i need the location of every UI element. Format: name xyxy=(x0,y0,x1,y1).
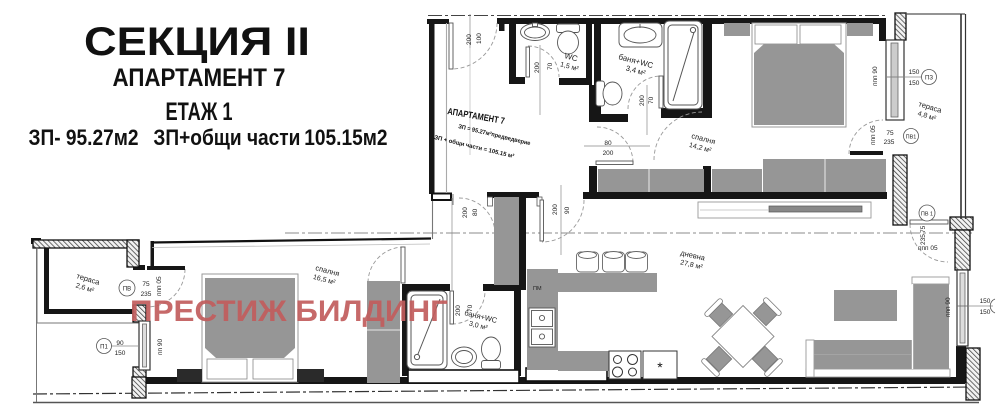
svg-text:*: * xyxy=(657,359,663,375)
svg-text:70: 70 xyxy=(467,304,474,312)
svg-text:150: 150 xyxy=(980,309,991,316)
svg-text:75: 75 xyxy=(886,130,894,137)
svg-text:100: 100 xyxy=(476,33,483,44)
svg-text:П1: П1 xyxy=(100,345,108,351)
svg-text:70: 70 xyxy=(547,62,554,70)
svg-text:ЗП- 95.27м2 ЗП+общи части 105: ЗП- 95.27м2 ЗП+общи части 105.15м2 xyxy=(29,125,388,150)
svg-text:ЕТАЖ 1: ЕТАЖ 1 xyxy=(166,98,233,126)
svg-text:235: 235 xyxy=(920,234,927,245)
svg-text:ПЗ: ПЗ xyxy=(925,76,933,82)
svg-text:90: 90 xyxy=(116,340,124,347)
svg-text:ппп 05: ппп 05 xyxy=(870,125,877,145)
svg-text:75: 75 xyxy=(142,281,150,288)
svg-text:200: 200 xyxy=(639,95,646,106)
svg-text:150: 150 xyxy=(909,80,920,87)
svg-text:75: 75 xyxy=(920,225,927,233)
svg-text:ПВ 1: ПВ 1 xyxy=(921,212,933,218)
svg-text:150: 150 xyxy=(909,69,920,76)
svg-text:150: 150 xyxy=(115,350,126,357)
svg-text:пп 90: пп 90 xyxy=(157,339,164,355)
svg-text:200: 200 xyxy=(466,34,473,45)
svg-text:235: 235 xyxy=(884,139,895,146)
svg-text:ппп 90: ппп 90 xyxy=(872,66,879,86)
svg-text:200: 200 xyxy=(603,150,614,157)
svg-text:70: 70 xyxy=(648,96,655,104)
svg-text:ПМ: ПМ xyxy=(533,286,542,292)
svg-text:200: 200 xyxy=(534,62,541,73)
svg-text:150: 150 xyxy=(980,298,991,305)
svg-text:200: 200 xyxy=(462,207,469,218)
svg-text:АПАРТАМЕНТ 7: АПАРТАМЕНТ 7 xyxy=(113,64,286,92)
svg-text:ппп 90: ппп 90 xyxy=(945,297,952,317)
svg-text:ппп 05: ппп 05 xyxy=(918,245,938,252)
svg-text:ПВ: ПВ xyxy=(123,287,131,293)
svg-text:200: 200 xyxy=(455,305,462,316)
svg-text:ПРЕСТИЖ БИЛДИНГ: ПРЕСТИЖ БИЛДИНГ xyxy=(130,295,448,328)
svg-text:90: 90 xyxy=(564,206,571,214)
svg-text:80: 80 xyxy=(604,140,612,147)
svg-text:ппп 05: ппп 05 xyxy=(156,276,163,296)
svg-text:200: 200 xyxy=(552,204,559,215)
svg-text:ПВ1: ПВ1 xyxy=(906,135,917,141)
svg-text:СЕКЦИЯ II: СЕКЦИЯ II xyxy=(84,20,310,64)
svg-text:80: 80 xyxy=(472,208,479,216)
